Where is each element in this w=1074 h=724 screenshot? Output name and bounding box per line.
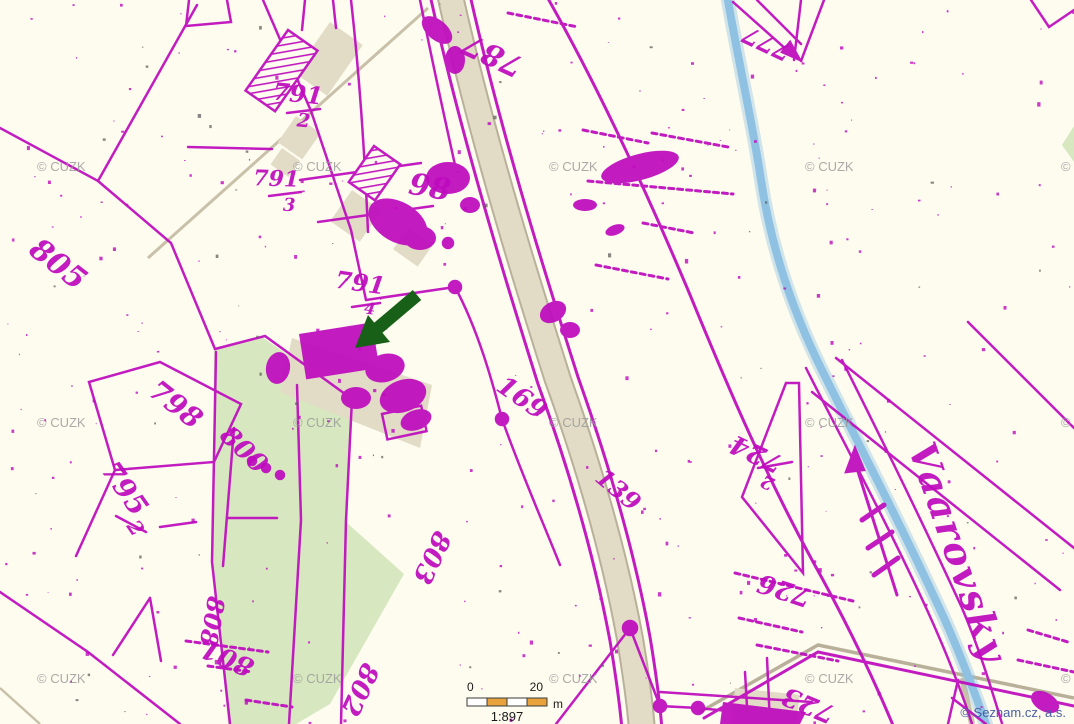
noise-speck xyxy=(126,204,128,206)
noise-speck xyxy=(738,276,741,279)
noise-speck xyxy=(33,552,36,555)
cuzk-watermark: © CUZK xyxy=(805,159,854,174)
noise-speck xyxy=(823,85,825,87)
noise-speck xyxy=(73,4,75,6)
noise-speck xyxy=(570,193,572,195)
noise-speck xyxy=(105,664,106,665)
noise-speck xyxy=(784,554,787,557)
noise-speck xyxy=(885,431,886,432)
noise-speck xyxy=(252,600,254,602)
cuzk-watermark: © CUZK xyxy=(37,415,86,430)
scale-bar-segments xyxy=(467,698,547,706)
noise-speck xyxy=(5,563,7,565)
noise-speck xyxy=(692,684,694,686)
parcel-label: 2 xyxy=(295,109,311,132)
noise-speck xyxy=(256,336,258,338)
noise-speck xyxy=(641,510,644,514)
noise-speck xyxy=(488,122,491,125)
noise-speck xyxy=(345,279,348,281)
noise-speck xyxy=(690,461,692,463)
noise-speck xyxy=(1039,270,1041,272)
noise-speck xyxy=(48,592,49,593)
noise-speck xyxy=(54,285,56,287)
noise-speck xyxy=(470,469,473,472)
noise-speck xyxy=(666,542,669,546)
noise-speck xyxy=(827,190,828,191)
noise-speck xyxy=(238,306,239,307)
noise-speck xyxy=(962,73,963,75)
noise-speck xyxy=(295,403,298,405)
scale-unit-label: m xyxy=(553,697,563,711)
noise-speck xyxy=(101,202,103,204)
noise-speck xyxy=(749,231,750,232)
noise-speck xyxy=(685,259,688,264)
noise-speck xyxy=(1014,597,1017,600)
noise-speck xyxy=(375,161,377,164)
cuzk-watermark: © CUZK xyxy=(293,159,342,174)
noise-speck xyxy=(141,323,143,324)
noise-speck xyxy=(103,138,106,140)
noise-speck xyxy=(175,497,176,498)
noise-speck xyxy=(184,160,186,161)
noise-speck xyxy=(234,50,236,52)
noise-speck xyxy=(1045,539,1048,541)
noise-speck xyxy=(394,207,397,209)
noise-speck xyxy=(113,121,114,122)
noise-speck xyxy=(80,216,82,217)
noise-speck xyxy=(348,83,351,86)
scale-twenty-label: 20 xyxy=(530,680,544,694)
noise-speck xyxy=(1056,619,1058,621)
noise-speck xyxy=(910,62,913,64)
noise-speck xyxy=(735,150,736,151)
noise-speck xyxy=(813,189,816,193)
noise-speck xyxy=(885,450,888,453)
noise-speck xyxy=(947,515,949,517)
noise-speck xyxy=(1040,81,1043,85)
noise-speck xyxy=(523,654,526,657)
noise-speck xyxy=(895,489,896,490)
cuzk-watermark: © CUZK xyxy=(1061,159,1074,174)
noise-speck xyxy=(751,75,754,79)
cuzk-watermark: © CUZK xyxy=(1061,415,1074,430)
noise-speck xyxy=(747,581,750,585)
noise-speck xyxy=(826,203,828,205)
noise-speck xyxy=(373,389,376,392)
noise-speck xyxy=(431,242,433,244)
noise-speck xyxy=(681,167,684,170)
noise-speck xyxy=(1069,286,1070,287)
noise-speck xyxy=(209,125,211,128)
noise-speck xyxy=(599,599,600,600)
noise-speck xyxy=(530,641,533,645)
noise-speck xyxy=(499,81,501,83)
noise-speck xyxy=(292,428,294,430)
noise-speck xyxy=(440,4,441,5)
noise-speck xyxy=(493,116,496,120)
noise-speck xyxy=(586,466,588,469)
noise-speck xyxy=(846,238,848,240)
noise-speck xyxy=(887,399,890,403)
noise-speck xyxy=(650,329,652,330)
noise-speck xyxy=(689,175,692,177)
noise-speck xyxy=(931,182,934,184)
noise-speck xyxy=(914,665,916,667)
noise-speck xyxy=(384,16,385,18)
noise-speck xyxy=(86,652,89,656)
noise-speck xyxy=(12,238,14,241)
noise-speck xyxy=(199,554,201,555)
noise-speck xyxy=(221,181,224,184)
noise-speck xyxy=(639,90,640,91)
noise-speck xyxy=(190,174,192,177)
noise-speck xyxy=(1035,583,1036,584)
parcel-label: 98 xyxy=(406,167,453,209)
noise-speck xyxy=(603,202,605,204)
noise-speck xyxy=(198,114,201,118)
noise-speck xyxy=(949,404,950,405)
noise-speck xyxy=(817,294,820,298)
noise-speck xyxy=(500,565,503,567)
noise-speck xyxy=(814,595,815,596)
noise-speck xyxy=(35,493,36,494)
noise-speck xyxy=(589,645,592,647)
noise-speck xyxy=(794,570,797,572)
noise-speck xyxy=(161,136,163,138)
noise-speck xyxy=(113,247,116,251)
noise-speck xyxy=(754,140,757,143)
noise-speck xyxy=(481,688,482,689)
noise-speck xyxy=(149,676,150,677)
seznam-credit[interactable]: © Seznam.cz, a.s. xyxy=(960,705,1066,720)
noise-speck xyxy=(327,420,330,422)
noise-speck xyxy=(259,26,262,30)
noise-speck xyxy=(925,604,928,606)
noise-speck xyxy=(618,18,620,20)
noise-speck xyxy=(796,70,798,72)
noise-speck xyxy=(27,146,30,150)
noise-speck xyxy=(602,665,604,667)
noise-speck xyxy=(851,120,852,121)
noise-speck xyxy=(298,416,301,419)
noise-speck xyxy=(819,568,822,573)
noise-speck xyxy=(530,386,532,388)
noise-speck xyxy=(26,594,28,596)
noise-speck xyxy=(443,263,446,266)
noise-speck xyxy=(982,348,985,351)
cuzk-watermark: © CUZK xyxy=(37,159,86,174)
noise-speck xyxy=(720,140,721,141)
noise-speck xyxy=(1004,306,1007,310)
noise-speck xyxy=(982,672,985,675)
noise-speck xyxy=(878,692,881,696)
noise-speck xyxy=(973,547,975,550)
noise-speck xyxy=(875,77,877,79)
noise-speck xyxy=(515,375,516,376)
noise-speck xyxy=(381,456,383,458)
noise-speck xyxy=(760,368,761,369)
noise-speck xyxy=(740,591,743,595)
noise-speck xyxy=(660,518,661,520)
noise-speck xyxy=(579,675,581,677)
noise-speck xyxy=(220,690,222,692)
noise-speck xyxy=(157,351,160,353)
noise-speck xyxy=(224,705,226,707)
noise-speck xyxy=(329,183,332,185)
noise-speck xyxy=(575,605,577,607)
noise-speck xyxy=(918,200,921,202)
noise-speck xyxy=(783,288,786,290)
noise-speck xyxy=(808,466,809,467)
noise-speck xyxy=(275,76,278,80)
noise-speck xyxy=(382,393,385,396)
noise-speck xyxy=(76,57,77,59)
noise-speck xyxy=(52,226,54,227)
noise-speck xyxy=(245,700,248,704)
noise-speck xyxy=(691,62,694,65)
noise-speck xyxy=(1013,431,1016,434)
noise-speck xyxy=(359,347,362,350)
cuzk-watermark: © CUZK xyxy=(805,671,854,686)
noise-speck xyxy=(146,714,147,715)
noise-speck xyxy=(729,130,730,131)
noise-speck xyxy=(301,181,304,183)
noise-speck xyxy=(284,375,285,376)
noise-speck xyxy=(60,195,62,197)
noise-speck xyxy=(259,236,262,239)
noise-speck xyxy=(555,2,557,5)
noise-speck xyxy=(802,63,805,65)
noise-speck xyxy=(668,127,670,129)
noise-speck xyxy=(730,683,731,684)
noise-speck xyxy=(542,133,543,134)
noise-speck xyxy=(84,276,85,277)
noise-speck xyxy=(813,144,814,145)
noise-speck xyxy=(996,193,999,196)
noise-speck xyxy=(633,165,636,168)
noise-speck xyxy=(831,341,834,345)
noise-speck xyxy=(174,666,177,669)
noise-speck xyxy=(558,652,560,654)
noise-speck xyxy=(765,201,767,203)
noise-speck xyxy=(198,261,199,262)
noise-speck xyxy=(1002,632,1004,635)
noise-speck xyxy=(938,214,939,216)
noise-speck xyxy=(265,246,266,248)
noise-speck xyxy=(226,340,227,341)
noise-speck xyxy=(728,444,731,447)
noise-speck xyxy=(595,430,596,432)
noise-speck xyxy=(689,617,691,618)
noise-speck xyxy=(71,681,73,683)
noise-speck xyxy=(12,430,15,433)
noise-speck xyxy=(19,354,20,355)
noise-speck xyxy=(913,62,915,64)
noise-speck xyxy=(682,109,685,111)
noise-speck xyxy=(141,568,143,570)
parcel-label: 791 xyxy=(271,77,324,111)
noise-speck xyxy=(820,427,821,428)
noise-speck xyxy=(951,186,952,187)
noise-speck xyxy=(859,250,862,252)
cuzk-watermark: © CUZK xyxy=(37,671,86,686)
noise-speck xyxy=(536,414,538,416)
cuzk-watermark: © CUZK xyxy=(1061,671,1074,686)
noise-speck xyxy=(179,52,180,53)
scale-ratio-label: 1:897 xyxy=(491,709,524,724)
noise-speck xyxy=(1039,184,1041,186)
cuzk-watermark: © CUZK xyxy=(549,159,598,174)
noise-speck xyxy=(666,312,668,314)
noise-speck xyxy=(832,375,834,377)
noise-speck xyxy=(458,150,461,154)
noise-speck xyxy=(924,355,926,357)
noise-speck xyxy=(327,542,328,543)
noise-speck xyxy=(373,455,374,457)
noise-speck xyxy=(26,334,28,336)
noise-speck xyxy=(813,560,816,563)
noise-speck xyxy=(48,181,51,184)
noise-speck xyxy=(391,429,394,433)
noise-speck xyxy=(235,189,237,190)
noise-speck xyxy=(30,18,32,20)
noise-speck xyxy=(518,632,519,634)
noise-speck xyxy=(830,241,833,245)
noise-speck xyxy=(721,326,723,327)
noise-speck xyxy=(50,528,52,530)
noise-speck xyxy=(543,131,544,132)
noise-speck xyxy=(1037,102,1040,106)
noise-speck xyxy=(457,31,459,33)
noise-speck xyxy=(126,314,128,316)
noise-speck xyxy=(922,31,923,33)
noise-speck xyxy=(99,257,102,261)
noise-speck xyxy=(826,511,827,512)
noise-speck xyxy=(421,39,422,40)
noise-speck xyxy=(662,202,664,204)
noise-speck xyxy=(342,181,343,182)
noise-speck xyxy=(655,450,657,452)
noise-speck xyxy=(870,571,872,573)
noise-speck xyxy=(646,678,647,679)
noise-speck xyxy=(71,385,73,386)
noise-speck xyxy=(671,706,673,708)
noise-speck xyxy=(819,158,820,159)
noise-speck xyxy=(445,223,446,224)
noise-speck xyxy=(521,505,523,508)
noise-speck xyxy=(754,618,757,622)
noise-speck xyxy=(464,207,467,211)
noise-speck xyxy=(485,204,488,208)
noise-speck xyxy=(707,145,708,146)
noise-speck xyxy=(332,243,333,244)
cuzk-watermark: © CUZK xyxy=(805,415,854,430)
cuzk-watermark: © CUZK xyxy=(293,671,342,686)
noise-speck xyxy=(88,674,90,677)
noise-speck xyxy=(1052,246,1055,248)
noise-speck xyxy=(867,440,870,442)
noise-speck xyxy=(138,331,139,332)
noise-speck xyxy=(216,255,219,258)
noise-speck xyxy=(469,666,471,668)
noise-speck xyxy=(11,467,14,470)
noise-speck xyxy=(658,592,661,596)
noise-speck xyxy=(860,343,862,345)
noise-speck xyxy=(703,98,705,99)
noise-speck xyxy=(380,299,381,300)
noise-speck xyxy=(460,665,461,666)
noise-speck xyxy=(76,579,78,581)
noise-speck xyxy=(643,508,646,510)
noise-speck xyxy=(714,231,716,234)
noise-speck xyxy=(302,191,305,193)
noise-speck xyxy=(34,176,35,177)
noise-speck xyxy=(316,329,319,332)
noise-speck xyxy=(260,373,262,376)
noise-speck xyxy=(215,660,218,665)
noise-speck xyxy=(845,130,848,132)
noise-speck xyxy=(69,593,72,596)
noise-speck xyxy=(741,377,742,378)
noise-speck xyxy=(52,477,55,479)
noise-speck xyxy=(947,10,949,12)
noise-speck xyxy=(359,456,362,459)
noise-speck xyxy=(688,460,690,463)
noise-speck xyxy=(246,151,249,153)
noise-speck xyxy=(93,400,96,403)
noise-speck xyxy=(439,548,441,550)
noise-speck xyxy=(849,349,851,350)
noise-speck xyxy=(625,376,628,380)
noise-speck xyxy=(755,503,756,504)
noise-speck xyxy=(1040,29,1041,30)
noise-speck xyxy=(678,546,680,547)
noise-speck xyxy=(308,641,310,643)
noise-speck xyxy=(192,519,195,523)
noise-speck xyxy=(967,522,969,523)
noise-speck xyxy=(662,159,664,161)
noise-speck xyxy=(859,606,861,608)
noise-speck xyxy=(96,423,97,424)
map-svg: 7877912791398805798795280079141691397242… xyxy=(0,0,1074,724)
noise-speck xyxy=(590,309,593,312)
noise-speck xyxy=(608,42,609,43)
noise-speck xyxy=(120,4,123,7)
noise-speck xyxy=(154,422,156,424)
noise-speck xyxy=(336,464,339,467)
noise-speck xyxy=(571,62,573,64)
noise-speck xyxy=(21,409,22,410)
cuzk-watermark: © CUZK xyxy=(549,415,598,430)
noise-speck xyxy=(466,521,468,522)
noise-speck xyxy=(840,46,843,49)
noise-speck xyxy=(996,461,998,463)
parcel-label: 3 xyxy=(283,195,296,216)
noise-speck xyxy=(343,719,346,722)
noise-speck xyxy=(464,601,465,602)
noise-speck xyxy=(608,253,611,257)
map-canvas[interactable]: 7877912791398805798795280079141691397242… xyxy=(0,0,1074,724)
noise-speck xyxy=(821,455,823,457)
noise-speck xyxy=(821,627,822,628)
noise-speck xyxy=(180,13,181,14)
noise-speck xyxy=(1063,553,1064,554)
noise-speck xyxy=(948,480,951,483)
noise-speck xyxy=(788,477,790,480)
noise-speck xyxy=(841,102,843,104)
noise-speck xyxy=(500,444,502,445)
noise-speck xyxy=(552,500,554,503)
